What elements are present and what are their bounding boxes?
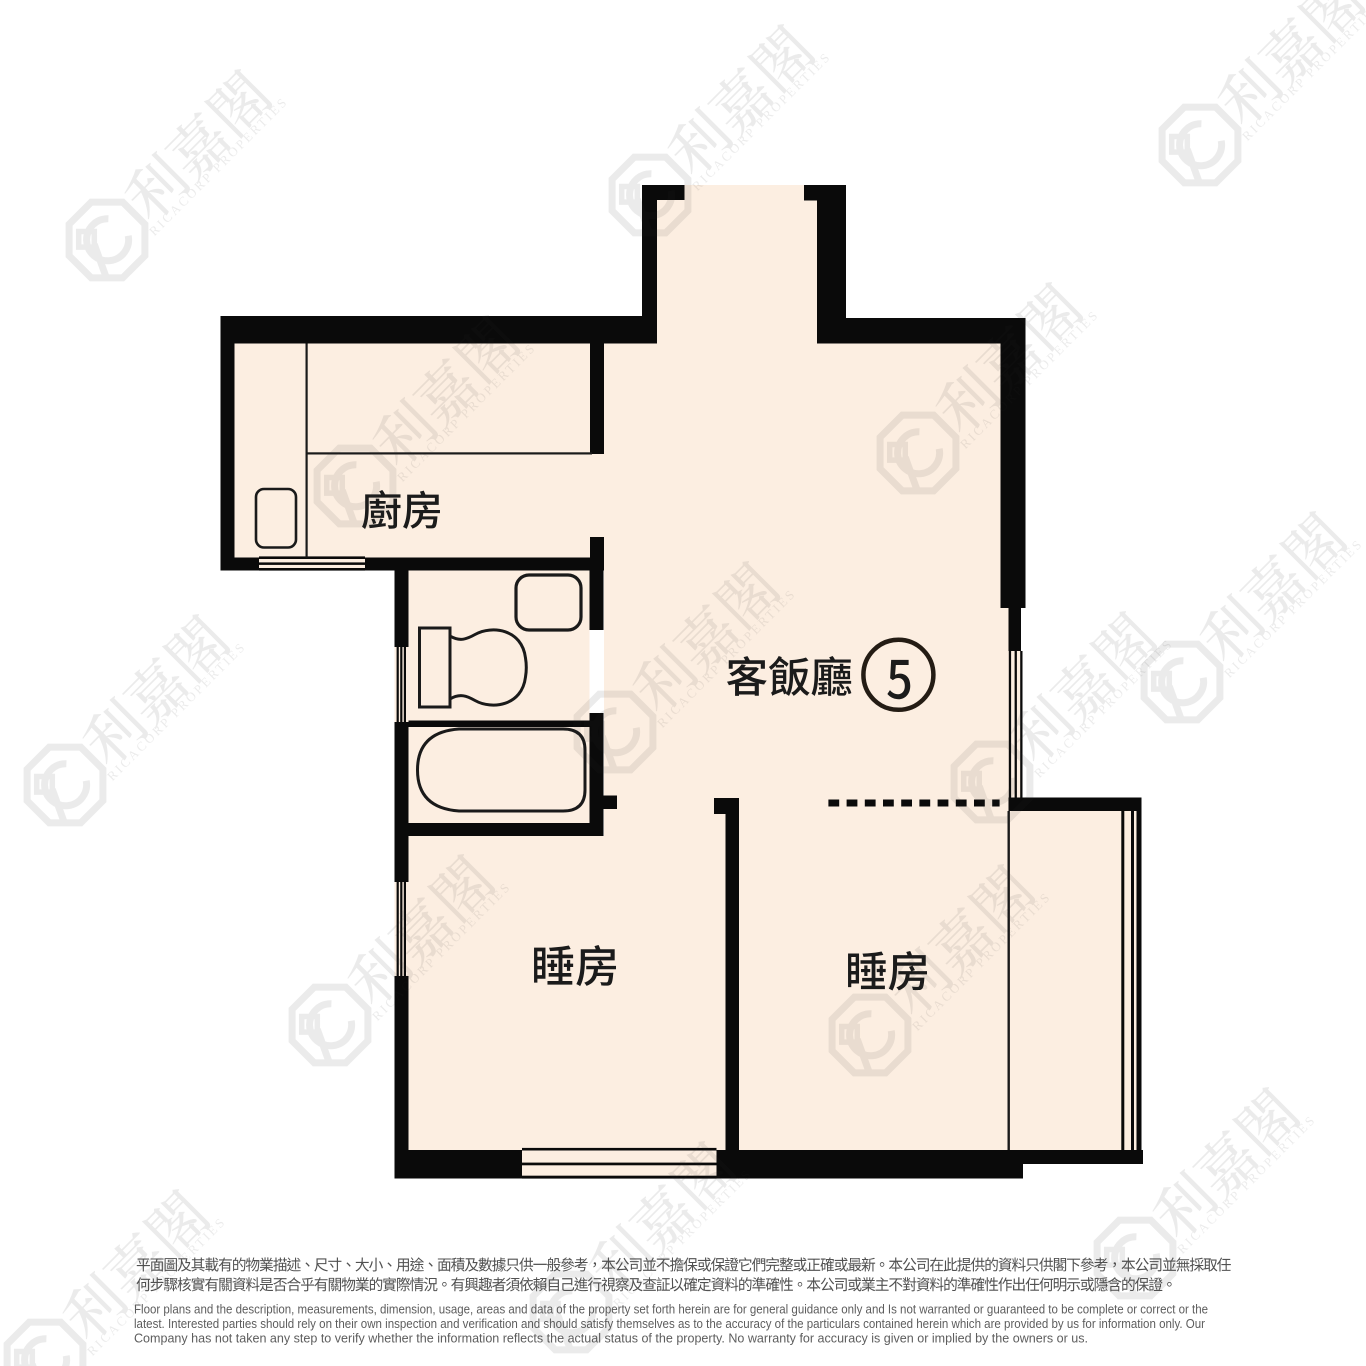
svg-text:latest. Interested parties sho: latest. Interested parties should rely o… [134, 1316, 1206, 1331]
svg-text:Floor plans and the descriptio: Floor plans and the description, measure… [134, 1302, 1208, 1317]
svg-text:Company has not taken any step: Company has not taken any step to verify… [134, 1330, 1088, 1345]
